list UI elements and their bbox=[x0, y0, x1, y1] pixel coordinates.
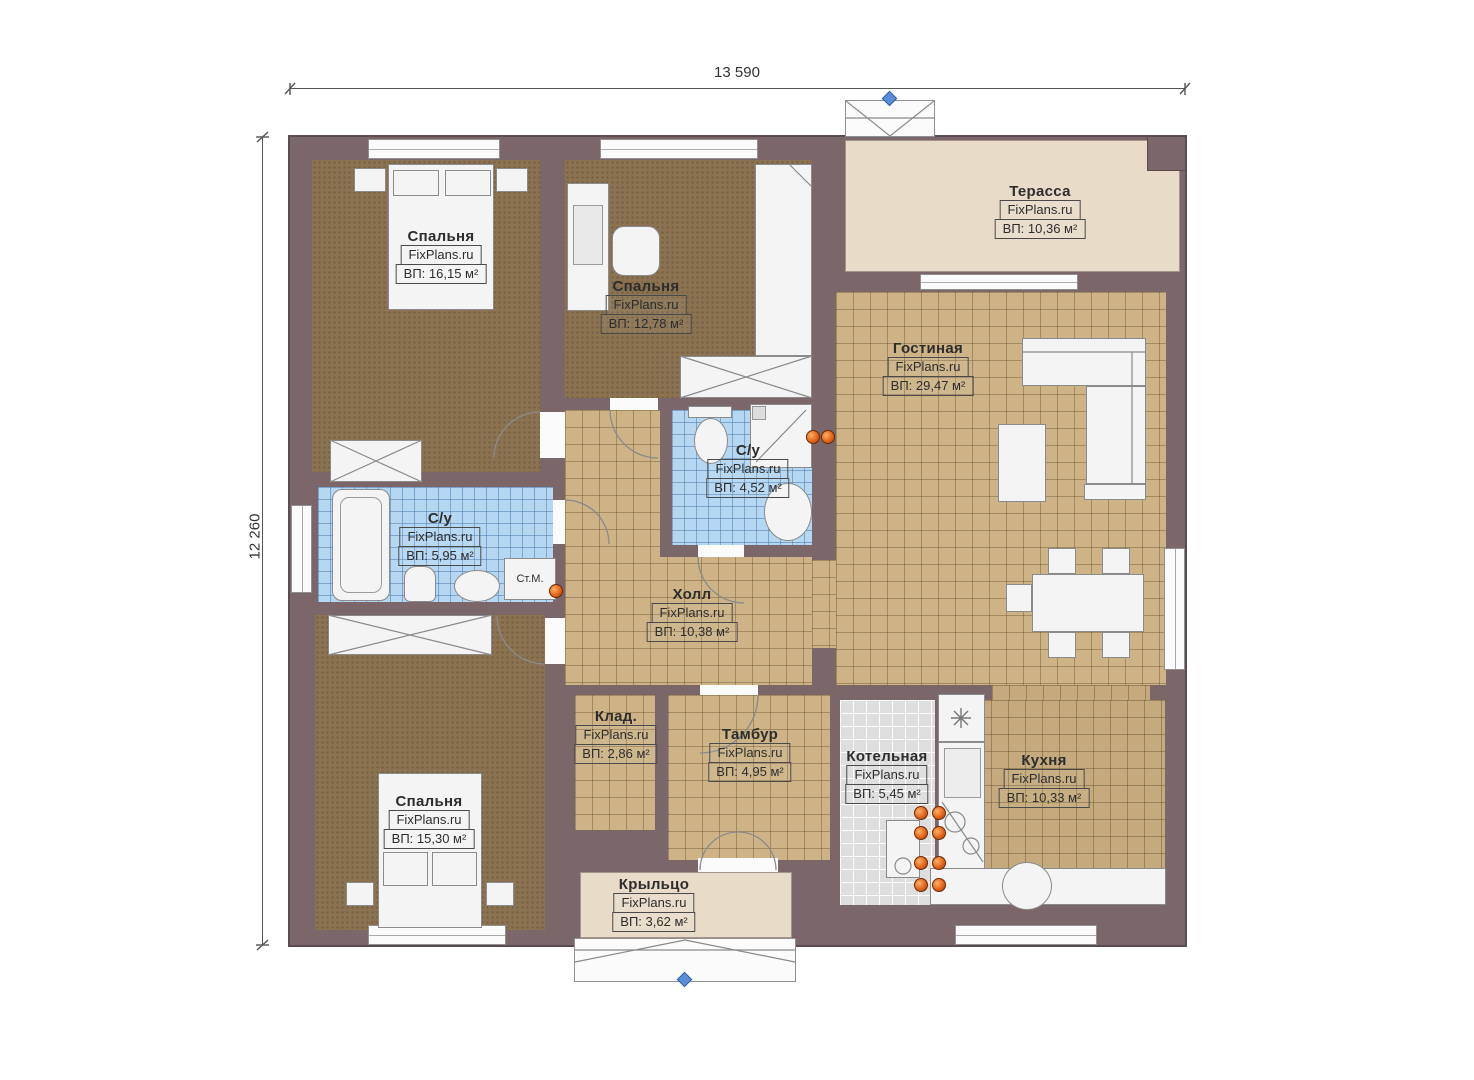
floor-plan: 13 590 12 260 bbox=[0, 0, 1474, 1080]
window-right-living bbox=[1164, 548, 1185, 670]
room-area: ВП: 10,38 м² bbox=[647, 622, 738, 642]
room-name: Спальня bbox=[408, 228, 475, 246]
room-name: Спальня bbox=[396, 793, 463, 811]
room-watermark: FixPlans.ru bbox=[605, 295, 686, 315]
room-name: Клад. bbox=[595, 708, 637, 726]
nightstand bbox=[496, 168, 528, 192]
room-name: Спальня bbox=[613, 278, 680, 296]
dimension-line-top bbox=[290, 88, 1185, 89]
radiator-dot bbox=[806, 430, 820, 444]
window-bottom-kitchen bbox=[955, 925, 1097, 945]
room-label-living: Гостиная FixPlans.ru ВП: 29,47 м² bbox=[883, 340, 974, 396]
room-watermark: FixPlans.ru bbox=[613, 893, 694, 913]
room-name: Тамбур bbox=[722, 726, 778, 744]
room-area: ВП: 10,36 м² bbox=[995, 219, 1086, 239]
room-label-porch: Крыльцо FixPlans.ru ВП: 3,62 м² bbox=[612, 876, 695, 932]
door-gap-vestibule bbox=[700, 685, 758, 695]
nightstand bbox=[354, 168, 386, 192]
toilet-tank bbox=[688, 406, 732, 418]
sink bbox=[454, 570, 500, 602]
room-watermark: FixPlans.ru bbox=[846, 765, 927, 785]
dimension-width-label: 13 590 bbox=[714, 64, 760, 81]
room-area: ВП: 4,52 м² bbox=[706, 478, 789, 498]
room-name: С/у bbox=[428, 510, 452, 528]
radiator-dot bbox=[932, 856, 946, 870]
nightstand bbox=[486, 882, 514, 906]
bed-single bbox=[755, 164, 812, 356]
bathtub-inner bbox=[340, 497, 382, 593]
chair bbox=[1006, 584, 1032, 612]
radiator-dot bbox=[821, 430, 835, 444]
coffee-table bbox=[998, 424, 1046, 502]
room-label-bath-left: С/у FixPlans.ru ВП: 5,95 м² bbox=[398, 510, 481, 566]
window-left bbox=[291, 505, 312, 593]
window-top-bedroom1 bbox=[368, 139, 500, 159]
room-label-boiler: Котельная FixPlans.ru ВП: 5,45 м² bbox=[845, 748, 928, 804]
chair bbox=[1102, 632, 1130, 658]
room-watermark: FixPlans.ru bbox=[575, 725, 656, 745]
desk-monitor bbox=[573, 205, 603, 265]
room-label-hall: Холл FixPlans.ru ВП: 10,38 м² bbox=[647, 586, 738, 642]
room-watermark: FixPlans.ru bbox=[400, 245, 481, 265]
pillow bbox=[445, 170, 491, 196]
room-name: Терасса bbox=[1009, 183, 1071, 201]
door-gap-bedroom2 bbox=[610, 398, 658, 410]
vent-box bbox=[938, 694, 985, 742]
wardrobe bbox=[330, 440, 422, 482]
chair bbox=[1048, 632, 1076, 658]
room-watermark: FixPlans.ru bbox=[651, 603, 732, 623]
dimension-height-label: 12 260 bbox=[247, 492, 264, 582]
radiator-dot bbox=[932, 826, 946, 840]
room-label-kitchen: Кухня FixPlans.ru ВП: 10,33 м² bbox=[999, 752, 1090, 808]
radiator-dot bbox=[914, 856, 928, 870]
wall-corner-post bbox=[1148, 137, 1185, 170]
room-area: ВП: 10,33 м² bbox=[999, 788, 1090, 808]
room-label-bedroom2: Спальня FixPlans.ru ВП: 12,78 м² bbox=[601, 278, 692, 334]
room-name: С/у bbox=[736, 442, 760, 460]
chair bbox=[1102, 548, 1130, 574]
room-label-bedroom3: Спальня FixPlans.ru ВП: 15,30 м² bbox=[384, 793, 475, 849]
radiator-dot bbox=[932, 806, 946, 820]
room-watermark: FixPlans.ru bbox=[999, 200, 1080, 220]
room-area: ВП: 16,15 м² bbox=[396, 264, 487, 284]
room-watermark: FixPlans.ru bbox=[709, 743, 790, 763]
room-label-bedroom1: Спальня FixPlans.ru ВП: 16,15 м² bbox=[396, 228, 487, 284]
room-area: ВП: 2,86 м² bbox=[574, 744, 657, 764]
living-kitchen-opening bbox=[992, 685, 1150, 700]
sofa-vertical bbox=[1086, 386, 1146, 484]
room-label-terrace: Терасса FixPlans.ru ВП: 10,36 м² bbox=[995, 183, 1086, 239]
hall-living-opening bbox=[812, 560, 836, 648]
room-watermark: FixPlans.ru bbox=[388, 810, 469, 830]
room-name: Холл bbox=[673, 586, 712, 604]
terrace-sliding-door bbox=[920, 274, 1078, 290]
pillow bbox=[393, 170, 439, 196]
room-area: ВП: 3,62 м² bbox=[612, 912, 695, 932]
door-gap-bedroom1 bbox=[540, 412, 565, 458]
door-gap-bathroom-top bbox=[698, 545, 744, 557]
wardrobe bbox=[680, 356, 812, 398]
radiator-dot bbox=[914, 806, 928, 820]
room-area: ВП: 5,95 м² bbox=[398, 546, 481, 566]
room-label-storage: Клад. FixPlans.ru ВП: 2,86 м² bbox=[574, 708, 657, 764]
door-gap-entry bbox=[698, 858, 778, 872]
door-gap-bedroom3 bbox=[545, 618, 565, 664]
room-label-bath-top: С/у FixPlans.ru ВП: 4,52 м² bbox=[706, 442, 789, 498]
radiator-dot bbox=[549, 584, 563, 598]
room-area: ВП: 29,47 м² bbox=[883, 376, 974, 396]
room-watermark: FixPlans.ru bbox=[399, 527, 480, 547]
radiator-dot bbox=[914, 826, 928, 840]
room-area: ВП: 15,30 м² bbox=[384, 829, 475, 849]
room-name: Котельная bbox=[846, 748, 927, 766]
room-name: Крыльцо bbox=[619, 876, 689, 894]
wardrobe bbox=[328, 615, 492, 655]
nightstand bbox=[346, 882, 374, 906]
window-top-bedroom2 bbox=[600, 139, 758, 159]
room-name: Кухня bbox=[1021, 752, 1066, 770]
room-watermark: FixPlans.ru bbox=[707, 459, 788, 479]
sofa-horizontal bbox=[1022, 338, 1146, 386]
pillow bbox=[383, 852, 428, 886]
toilet bbox=[404, 566, 436, 602]
desk-chair bbox=[612, 226, 660, 276]
radiator-dot bbox=[914, 878, 928, 892]
room-area: ВП: 5,45 м² bbox=[845, 784, 928, 804]
window-bottom-bedroom3 bbox=[368, 925, 506, 945]
room-watermark: FixPlans.ru bbox=[887, 357, 968, 377]
room-label-vestibule: Тамбур FixPlans.ru ВП: 4,95 м² bbox=[708, 726, 791, 782]
room-watermark: FixPlans.ru bbox=[1003, 769, 1084, 789]
door-gap-bathroom-left bbox=[553, 500, 565, 544]
kitchen-table-round bbox=[1002, 862, 1052, 910]
washing-machine-label: Ст.М. bbox=[516, 573, 543, 585]
washing-machine: Ст.М. bbox=[504, 558, 556, 600]
fridge bbox=[944, 748, 981, 798]
pillow bbox=[432, 852, 477, 886]
shower-head-icon bbox=[752, 406, 766, 420]
dining-table bbox=[1032, 574, 1144, 632]
room-name: Гостиная bbox=[893, 340, 963, 358]
chair bbox=[1048, 548, 1076, 574]
room-area: ВП: 12,78 м² bbox=[601, 314, 692, 334]
sofa-armrest bbox=[1084, 484, 1146, 500]
room-area: ВП: 4,95 м² bbox=[708, 762, 791, 782]
radiator-dot bbox=[932, 878, 946, 892]
